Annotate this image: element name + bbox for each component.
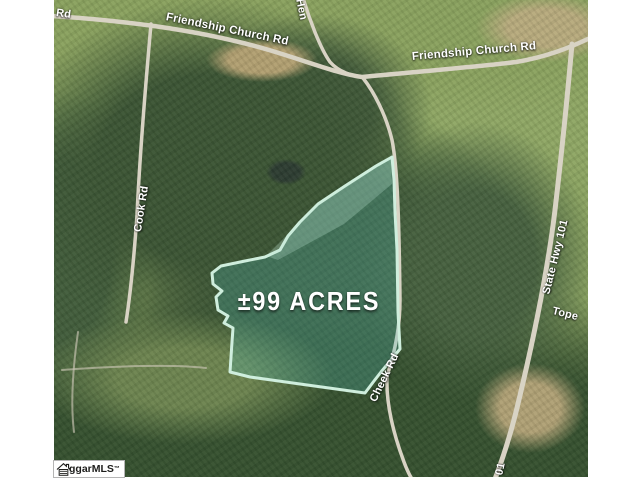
mls-watermark-text: ggarMLS xyxy=(69,463,114,475)
aerial-listing-graphic: { "page": { "type": "real-estate-aerial-… xyxy=(0,0,640,480)
cook-rd-road xyxy=(126,24,151,322)
map-overlay-layer xyxy=(54,0,588,477)
satellite-map: Rd Friendship Church Rd Friendship Churc… xyxy=(54,0,588,477)
mls-watermark: ggarMLS ™ xyxy=(53,460,125,478)
acreage-label: ±99 ACRES xyxy=(215,286,404,317)
subdivision-street xyxy=(72,332,78,432)
mls-trademark-symbol: ™ xyxy=(114,466,120,472)
subdivision-street xyxy=(62,366,206,370)
parcel-highlight xyxy=(212,157,400,393)
road-label-rd-partial: Rd xyxy=(55,8,71,21)
